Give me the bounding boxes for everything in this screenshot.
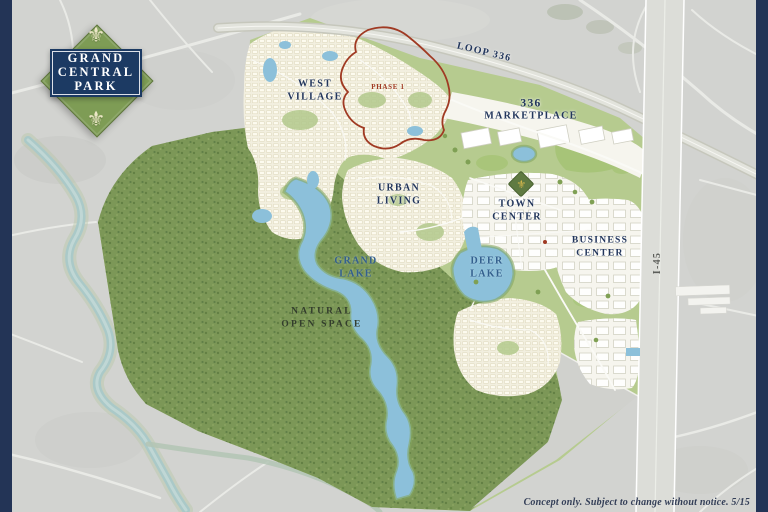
pond	[252, 209, 272, 223]
label-line: TOWN	[492, 199, 541, 212]
logo: ⚜ ⚜ GRAND CENTRAL PARK	[40, 22, 152, 136]
logo-line-1: GRAND	[53, 52, 139, 66]
label-line: LAKE	[470, 268, 504, 281]
frame-right	[756, 0, 768, 512]
disclaimer-text: Concept only. Subject to change without …	[524, 497, 750, 508]
label-phase-1: PHASE 1	[371, 81, 405, 94]
label-urban-living: URBAN LIVING	[377, 183, 421, 208]
label-line: 336	[484, 98, 577, 111]
pond	[307, 171, 319, 189]
label-natural-open-space: NATURAL OPEN SPACE	[281, 306, 362, 331]
label-line: NATURAL	[281, 306, 362, 319]
logo-text: GRAND CENTRAL PARK	[52, 51, 140, 95]
label-line: BUSINESS	[572, 235, 628, 248]
label-line: VILLAGE	[287, 91, 342, 104]
fleur-glyph: ⚜	[516, 177, 526, 190]
fleur-de-lis-icon: ⚜	[40, 24, 152, 46]
business-pool	[626, 348, 640, 356]
label-town-center: TOWN CENTER	[492, 199, 541, 224]
label-line: GRAND	[334, 256, 377, 269]
label-line: LIVING	[377, 195, 421, 208]
master-plan-map: ⚜ ⚜ GRAND CENTRAL PARK WEST VILLAGE PHAS…	[0, 0, 768, 512]
pond	[263, 58, 277, 82]
label-deer-lake: DEER LAKE	[470, 256, 504, 281]
pond	[407, 126, 423, 136]
label-line: OPEN SPACE	[281, 318, 362, 331]
poi-marker	[543, 240, 547, 244]
pond	[322, 51, 338, 61]
marketplace-pond	[512, 146, 536, 162]
label-line: CENTER	[492, 211, 541, 224]
label-business-center: BUSINESS CENTER	[572, 235, 628, 260]
label-line: CENTER	[572, 247, 628, 260]
logo-line-2: CENTRAL	[53, 66, 139, 80]
pond	[279, 41, 291, 49]
label-i45: I-45	[652, 252, 665, 274]
label-line: DEER	[470, 256, 504, 269]
label-line: LAKE	[334, 268, 377, 281]
label-line: URBAN	[377, 183, 421, 196]
fleur-de-lis-icon: ⚜	[40, 108, 152, 130]
label-west-village: WEST VILLAGE	[287, 79, 342, 104]
label-grand-lake: GRAND LAKE	[334, 256, 377, 281]
label-line: WEST	[287, 79, 342, 92]
logo-plate: GRAND CENTRAL PARK	[50, 49, 142, 97]
frame-left	[0, 0, 12, 512]
logo-line-3: PARK	[53, 80, 139, 94]
label-line: MARKETPLACE	[484, 110, 577, 123]
label-336-marketplace: 336 MARKETPLACE	[484, 98, 577, 123]
